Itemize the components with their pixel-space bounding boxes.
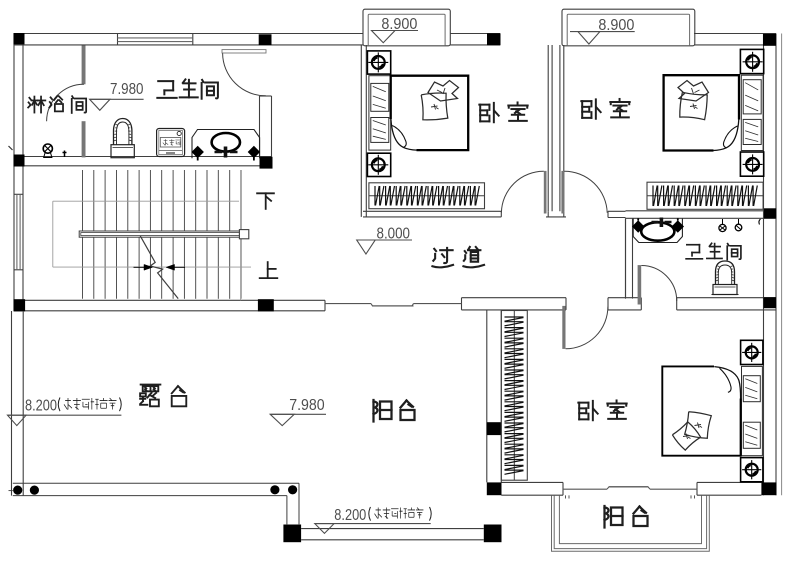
- svg-text:8.000: 8.000: [377, 226, 411, 243]
- svg-text:8.900: 8.900: [598, 17, 634, 34]
- svg-text:7.980: 7.980: [289, 397, 325, 414]
- svg-text:8.200: 8.200: [25, 398, 57, 415]
- svg-text:7.980: 7.980: [110, 81, 144, 98]
- svg-text:8.200: 8.200: [334, 507, 366, 524]
- svg-text:8.900: 8.900: [381, 16, 417, 33]
